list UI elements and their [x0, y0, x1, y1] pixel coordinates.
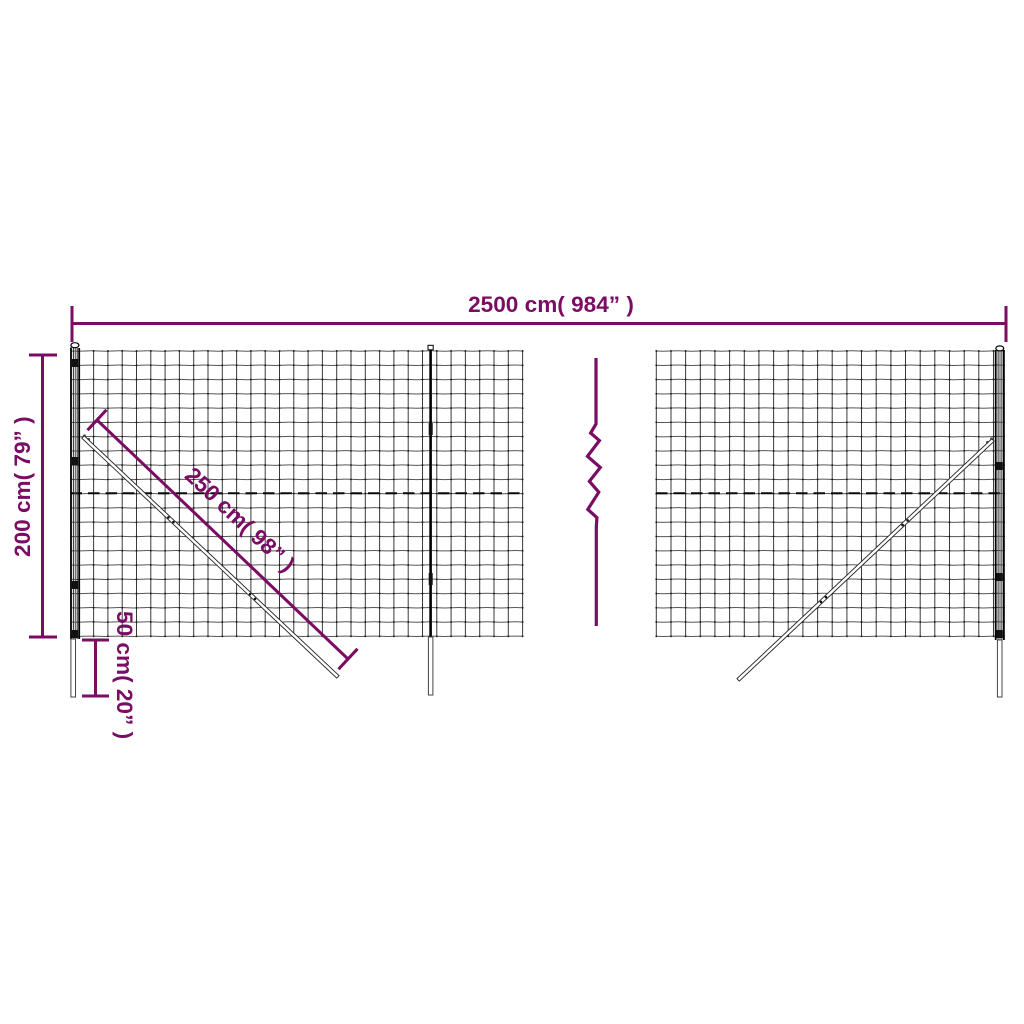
svg-text:200 cm( 79” ): 200 cm( 79” ) [10, 416, 35, 557]
svg-text:2500 cm( 984” ): 2500 cm( 984” ) [468, 292, 634, 317]
svg-text:50 cm( 20” ): 50 cm( 20” ) [112, 611, 137, 739]
